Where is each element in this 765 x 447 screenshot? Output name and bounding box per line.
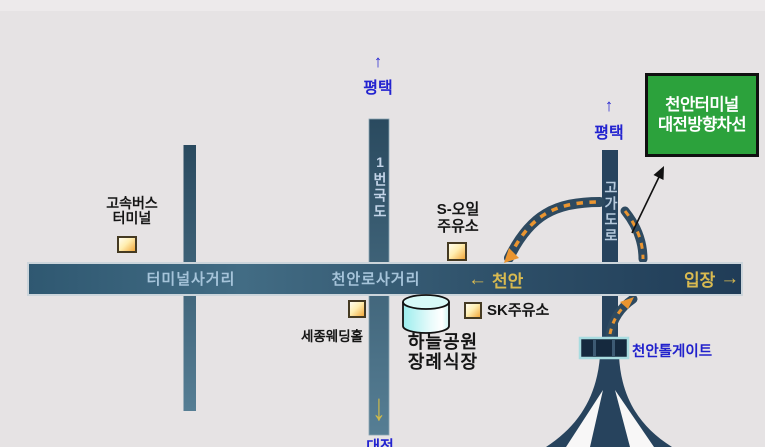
sejong-wedding-hall-marker: [348, 300, 366, 318]
overpass-road-label: 고가도로: [599, 161, 621, 263]
tollgate-divider-2: [612, 340, 615, 356]
direction-ipjang-label: 입장: [684, 266, 715, 291]
toll-fan: [546, 356, 672, 447]
direction-cheonan-group: ← 천안: [468, 267, 523, 292]
direction-ipjang-group: 입장 →: [684, 266, 739, 291]
sky-park-funeral-label: 하늘공원 장례식장: [399, 333, 487, 372]
express-bus-terminal-label: 고속버스 터미널: [88, 196, 176, 226]
direction-cheonan-label: 천안: [492, 267, 523, 292]
cheonan-arrow-left-icon: ←: [468, 269, 487, 291]
tollgate-bar: [580, 338, 628, 358]
skypark-cylinder-top: [403, 295, 449, 309]
s-oil-marker: [447, 242, 467, 261]
ipjang-arrow-right-icon: →: [720, 268, 739, 290]
tollgate-divider-1: [593, 340, 596, 356]
s-oil-line2: 주유소: [424, 218, 492, 235]
direction-pyeongtaek-top: 평택: [352, 74, 404, 98]
sign-pointer-line: [632, 177, 659, 233]
sk-station-label: SK주유소: [487, 302, 549, 319]
sejong-wedding-hall-label: 세종웨딩홀: [290, 325, 374, 345]
pyeongtaek-right-arrow-up-icon: ↑: [583, 97, 635, 114]
pyeongtaek-top-arrow-up-icon: ↑: [352, 53, 404, 70]
direction-pyeongtaek-right: 평택: [583, 119, 635, 143]
sk-station-marker: [464, 302, 482, 319]
s-oil-line1: S-오일: [424, 201, 492, 218]
cheonanro-intersection-label: 천안로사거리: [320, 268, 432, 289]
sky-park-line1: 하늘공원: [399, 333, 487, 353]
sky-park-line2: 장례식장: [399, 353, 487, 373]
terminal-direction-sign: 천안터미널 대전방향차선: [645, 73, 759, 157]
sign-line1: 천안터미널: [665, 95, 738, 115]
route1-down-arrow-icon: ↓: [366, 386, 392, 429]
tollgate-label: 천안톨게이트: [632, 340, 712, 361]
terminal-intersection-label: 터미널사거리: [138, 268, 244, 289]
express-bus-terminal-line2: 터미널: [88, 211, 176, 226]
direction-daejeon-bottom: 대전: [356, 435, 404, 447]
express-bus-terminal-line1: 고속버스: [88, 196, 176, 211]
map-root: ↑ 평택 ↑ 평택 1번국도 고가도로 터미널사거리 천안로사거리 ← 천안 입…: [0, 0, 765, 447]
s-oil-label: S-오일 주유소: [424, 201, 492, 235]
express-bus-terminal-marker: [117, 236, 137, 253]
route1-road-label: 1번국도: [368, 126, 390, 248]
sign-line2: 대전방향차선: [658, 115, 746, 135]
